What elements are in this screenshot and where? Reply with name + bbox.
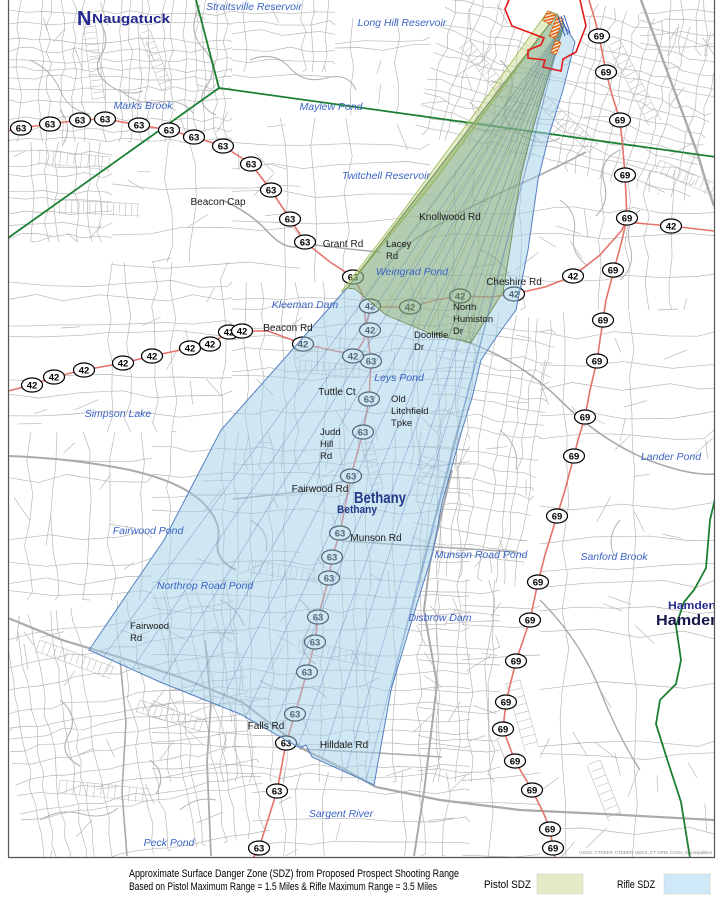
svg-text:69: 69 bbox=[569, 451, 580, 462]
svg-text:Twitchell Reservoir: Twitchell Reservoir bbox=[342, 170, 430, 182]
svg-text:69: 69 bbox=[525, 615, 536, 626]
svg-text:Fairwood Pond: Fairwood Pond bbox=[113, 525, 185, 537]
svg-text:Falls Rd: Falls Rd bbox=[248, 721, 285, 732]
svg-text:Approximate Surface Danger Zon: Approximate Surface Danger Zone (SDZ) fr… bbox=[129, 868, 459, 880]
svg-text:69: 69 bbox=[594, 31, 605, 42]
svg-text:69: 69 bbox=[601, 67, 612, 78]
svg-text:Peck Pond: Peck Pond bbox=[144, 837, 196, 849]
svg-text:69: 69 bbox=[545, 824, 556, 835]
svg-text:69: 69 bbox=[527, 785, 538, 796]
svg-text:Beacon Cap: Beacon Cap bbox=[190, 197, 245, 208]
svg-text:USGS, CTDEEP, CTDEEP, USGS, CT: USGS, CTDEEP, CTDEEP, USGS, CT OPM, COGs… bbox=[579, 850, 713, 855]
svg-text:Sargent River: Sargent River bbox=[309, 808, 374, 820]
svg-text:69: 69 bbox=[511, 656, 522, 667]
svg-text:Simpson Lake: Simpson Lake bbox=[85, 408, 152, 420]
svg-text:42: 42 bbox=[79, 365, 90, 376]
svg-text:63: 63 bbox=[16, 123, 27, 134]
svg-text:Sanford Brook: Sanford Brook bbox=[580, 551, 648, 563]
svg-text:Lander Pond: Lander Pond bbox=[641, 451, 702, 463]
svg-text:69: 69 bbox=[580, 412, 591, 423]
svg-text:Straitsville Reservoir: Straitsville Reservoir bbox=[206, 1, 302, 13]
svg-text:Long Hill Reservoir: Long Hill Reservoir bbox=[358, 17, 447, 29]
svg-text:Hamden: Hamden bbox=[656, 612, 720, 629]
svg-text:Tuttle Ct: Tuttle Ct bbox=[318, 387, 356, 398]
svg-text:63: 63 bbox=[272, 786, 283, 797]
svg-text:42: 42 bbox=[147, 351, 158, 362]
svg-text:63: 63 bbox=[254, 843, 265, 854]
svg-text:Hilldale Rd: Hilldale Rd bbox=[320, 740, 368, 751]
svg-text:69: 69 bbox=[498, 724, 509, 735]
svg-text:Kleeman Dam: Kleeman Dam bbox=[272, 299, 339, 311]
svg-text:63: 63 bbox=[189, 132, 200, 143]
svg-text:69: 69 bbox=[620, 170, 631, 181]
svg-text:Naugatuck: Naugatuck bbox=[92, 12, 170, 26]
svg-text:69: 69 bbox=[533, 577, 544, 588]
svg-text:69: 69 bbox=[592, 356, 603, 367]
svg-text:63: 63 bbox=[164, 125, 175, 136]
svg-text:63: 63 bbox=[246, 159, 257, 170]
svg-text:Pistol SDZ: Pistol SDZ bbox=[484, 879, 531, 891]
svg-text:Munson Road Pond: Munson Road Pond bbox=[435, 549, 529, 561]
svg-text:Cheshire Rd: Cheshire Rd bbox=[486, 277, 542, 288]
svg-text:Beacon Rd: Beacon Rd bbox=[263, 323, 312, 334]
svg-text:69: 69 bbox=[510, 756, 521, 767]
svg-text:Munson Rd: Munson Rd bbox=[350, 533, 401, 544]
svg-text:42: 42 bbox=[118, 358, 129, 369]
svg-text:69: 69 bbox=[622, 213, 633, 224]
svg-text:63: 63 bbox=[75, 115, 86, 126]
svg-text:42: 42 bbox=[568, 271, 579, 282]
svg-text:Fairwood Rd: Fairwood Rd bbox=[292, 484, 349, 495]
svg-text:63: 63 bbox=[218, 141, 229, 152]
svg-text:63: 63 bbox=[266, 185, 277, 196]
svg-text:Northrop Road Pond: Northrop Road Pond bbox=[157, 580, 254, 592]
svg-text:Hamden: Hamden bbox=[668, 600, 716, 612]
svg-text:42: 42 bbox=[49, 372, 60, 383]
svg-text:42: 42 bbox=[237, 326, 248, 337]
svg-text:69: 69 bbox=[552, 511, 563, 522]
svg-text:42: 42 bbox=[666, 221, 677, 232]
svg-text:Leys Pond: Leys Pond bbox=[374, 372, 425, 384]
svg-text:42: 42 bbox=[185, 343, 196, 354]
svg-text:Based on Pistol Maximum Range: Based on Pistol Maximum Range = 1.5 Mile… bbox=[129, 881, 437, 893]
svg-text:Grant Rd: Grant Rd bbox=[323, 239, 364, 250]
svg-text:N: N bbox=[77, 8, 91, 30]
svg-text:63: 63 bbox=[300, 237, 311, 248]
svg-text:Knollwood Rd: Knollwood Rd bbox=[419, 212, 481, 223]
svg-text:Disbrow Dam: Disbrow Dam bbox=[408, 612, 471, 624]
svg-text:42: 42 bbox=[205, 339, 216, 350]
svg-text:69: 69 bbox=[598, 315, 609, 326]
svg-text:Weingrad Pond: Weingrad Pond bbox=[376, 266, 449, 278]
svg-text:69: 69 bbox=[615, 115, 626, 126]
svg-text:42: 42 bbox=[27, 380, 38, 391]
svg-text:69: 69 bbox=[548, 843, 559, 854]
svg-text:63: 63 bbox=[134, 120, 145, 131]
svg-text:Bethany: Bethany bbox=[337, 504, 378, 516]
svg-text:Rifle SDZ: Rifle SDZ bbox=[617, 879, 655, 891]
svg-text:63: 63 bbox=[45, 119, 56, 130]
svg-text:69: 69 bbox=[608, 265, 619, 276]
svg-text:Marks Brook: Marks Brook bbox=[114, 100, 174, 112]
svg-text:69: 69 bbox=[501, 697, 512, 708]
svg-text:Maylew Pond: Maylew Pond bbox=[299, 101, 363, 113]
svg-text:63: 63 bbox=[100, 114, 111, 125]
svg-text:63: 63 bbox=[285, 214, 296, 225]
